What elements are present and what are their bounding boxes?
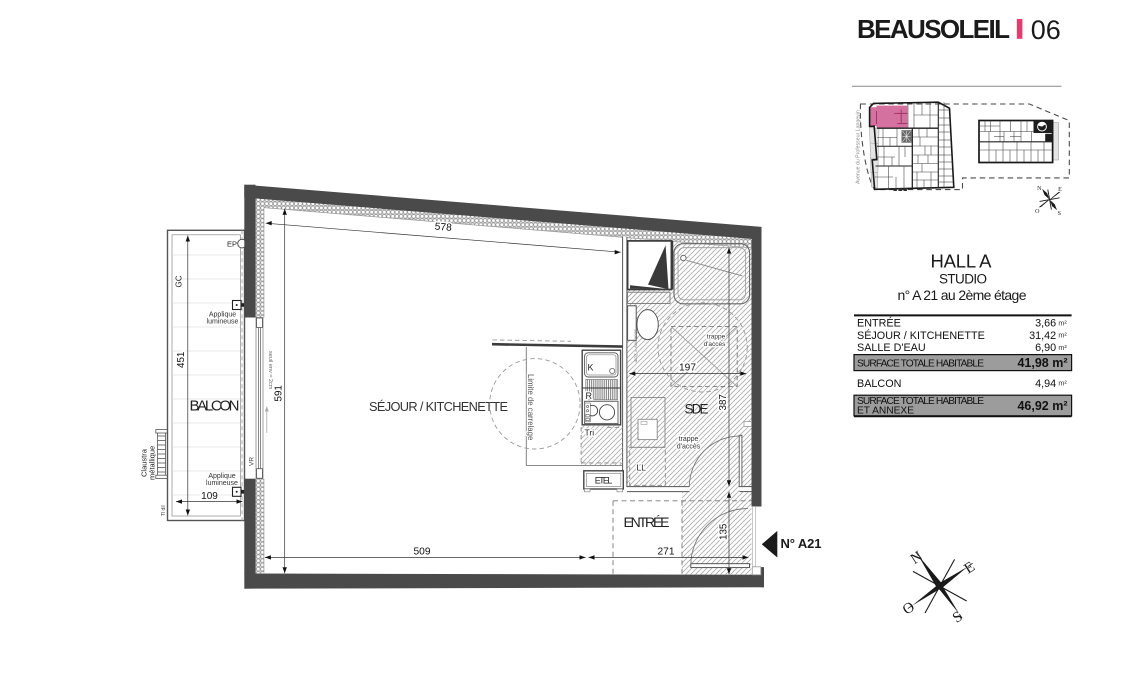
svg-text:HALL A: HALL A — [931, 250, 993, 271]
svg-text:SURFACE TOTALE HABITABLE: SURFACE TOTALE HABITABLE — [857, 359, 984, 370]
svg-text:BALCON: BALCON — [190, 398, 240, 415]
svg-text:509: 509 — [414, 546, 431, 557]
svg-text:BEAUSOLEIL: BEAUSOLEIL — [857, 14, 1010, 44]
svg-text:STUDIO: STUDIO — [939, 272, 987, 287]
svg-text:K: K — [588, 363, 594, 373]
svg-text:SÉJOUR / KITCHENETTE: SÉJOUR / KITCHENETTE — [369, 399, 508, 414]
svg-text:R: R — [586, 391, 593, 401]
svg-text:m²: m² — [1058, 331, 1067, 340]
svg-text:3,66: 3,66 — [1035, 318, 1056, 330]
svg-text:SDE: SDE — [685, 402, 709, 417]
svg-text:41,98 m²: 41,98 m² — [1017, 356, 1067, 370]
svg-text:Tl dil: Tl dil — [161, 505, 167, 516]
svg-text:Tri: Tri — [585, 427, 595, 437]
svg-text:N: N — [1037, 186, 1042, 192]
svg-text:SÉJOUR / KITCHENETTE: SÉJOUR / KITCHENETTE — [857, 329, 985, 342]
svg-text:seuil env = 2cm: seuil env = 2cm — [633, 329, 639, 362]
svg-text:GC: GC — [175, 275, 184, 287]
svg-text:lumineuse: lumineuse — [206, 480, 238, 487]
svg-text:d'accès: d'accès — [704, 341, 727, 348]
svg-text:LL: LL — [637, 463, 647, 473]
svg-text:46,92 m²: 46,92 m² — [1017, 399, 1067, 413]
svg-text:d'accès: d'accès — [677, 443, 701, 450]
svg-text:VR: VR — [249, 457, 256, 466]
svg-text:m²: m² — [1058, 318, 1067, 327]
svg-text:O: O — [1035, 209, 1040, 215]
svg-text:S: S — [1058, 211, 1061, 217]
svg-text:lumineuse: lumineuse — [207, 319, 239, 326]
svg-text:06: 06 — [1031, 15, 1061, 45]
svg-text:Applique: Applique — [209, 311, 236, 318]
svg-text:ENTRÉE: ENTRÉE — [857, 317, 901, 330]
svg-text:m²: m² — [1058, 379, 1067, 388]
svg-text:271: 271 — [658, 546, 675, 557]
svg-text:Applique: Applique — [208, 473, 235, 480]
svg-text:trappe: trappe — [707, 334, 726, 341]
svg-text:métallique: métallique — [148, 446, 157, 480]
svg-text:Limite de carrelage: Limite de carrelage — [526, 374, 535, 440]
svg-text:387: 387 — [718, 394, 729, 410]
svg-text:ENTRÉE: ENTRÉE — [624, 514, 670, 530]
svg-text:Avenue du Professeur Langevin: Avenue du Professeur Langevin — [856, 110, 862, 184]
svg-text:trappe: trappe — [679, 436, 699, 443]
svg-text:578: 578 — [434, 222, 452, 234]
svg-text:197: 197 — [679, 363, 696, 374]
svg-text:BALCON: BALCON — [857, 378, 901, 390]
svg-text:m²: m² — [1058, 343, 1067, 352]
svg-text:seuil env = 2cm: seuil env = 2cm — [267, 351, 273, 390]
svg-text:135: 135 — [718, 523, 729, 540]
svg-text:ETEL: ETEL — [595, 476, 613, 486]
svg-text:451: 451 — [176, 352, 187, 368]
svg-text:N° A21: N° A21 — [781, 536, 822, 551]
svg-text:EP: EP — [227, 239, 237, 248]
svg-text:31,42: 31,42 — [1029, 330, 1056, 342]
svg-text:4,94: 4,94 — [1035, 378, 1056, 390]
svg-text:SALLE D'EAU: SALLE D'EAU — [857, 342, 926, 354]
svg-text:n° A 21 au 2ème étage: n° A 21 au 2ème étage — [898, 287, 1027, 303]
svg-text:109: 109 — [201, 491, 218, 502]
svg-text:ET ANNEXE: ET ANNEXE — [857, 406, 914, 417]
svg-text:591: 591 — [274, 385, 285, 401]
svg-text:6,90: 6,90 — [1035, 342, 1056, 354]
svg-text:E: E — [1058, 187, 1062, 193]
